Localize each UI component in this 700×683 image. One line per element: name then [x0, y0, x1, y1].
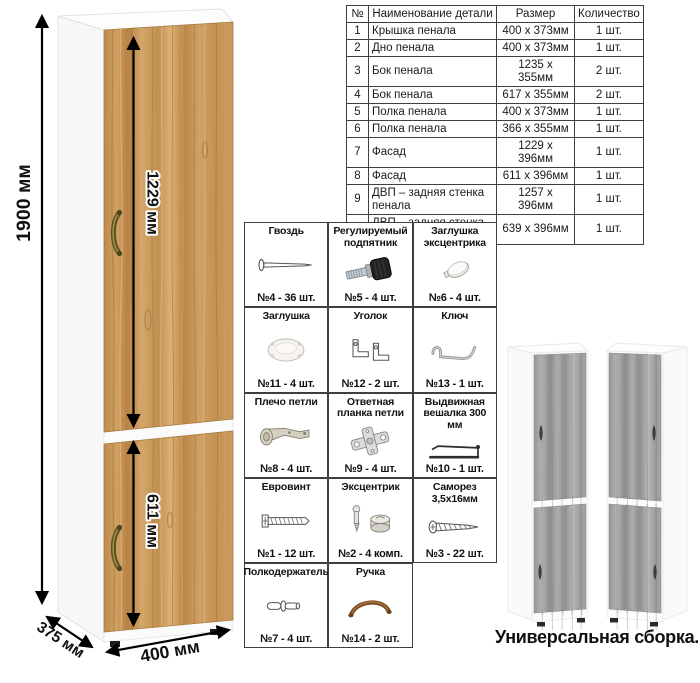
hinge-arm-icon [251, 408, 321, 463]
table-cell: 2 шт. [575, 87, 644, 104]
hardware-item-title: Эксцентрик [341, 482, 399, 494]
table-cell: 1229 х 396мм [497, 138, 575, 168]
table-cell: 1 шт. [575, 138, 644, 168]
hardware-item-title: Евровинт [262, 482, 311, 494]
hardware-item: Ответная планка петли№9 - 4 шт. [328, 393, 412, 478]
table-cell: 400 х 373мм [497, 23, 575, 40]
self-tapping-screw-icon [420, 505, 490, 548]
table-row: 4Бок пенала617 х 355мм2 шт. [347, 87, 644, 104]
upper-door-dimension-label: 1229 мм [144, 171, 161, 235]
hardware-item: Выдвижная вешалка 300 мм№10 - 1 шт. [413, 393, 497, 478]
pullout-hanger-icon [420, 432, 490, 463]
parts-table-header-row: №Наименование деталиРазмерКоличество [347, 6, 644, 23]
hardware-item-title: Саморез 3,5х16мм [415, 482, 495, 506]
table-cell: 1257 х 396мм [497, 185, 575, 215]
hardware-item-title: Ключ [441, 311, 468, 323]
universal-assembly-illustration [495, 330, 700, 630]
table-cell: 4 [347, 87, 369, 104]
table-cell: 3 [347, 57, 369, 87]
cabinet-foot [110, 641, 120, 647]
column-header: Наименование детали [369, 6, 497, 23]
hardware-item-title: Ответная планка петли [330, 397, 410, 421]
table-cell: Дно пенала [369, 40, 497, 57]
table-cell: 7 [347, 138, 369, 168]
table-cell: 1235 х 355мм [497, 57, 575, 87]
euro-screw-icon [251, 494, 321, 549]
table-cell: ДВП – задняя стенка пенала [369, 185, 497, 215]
table-row: 8Фасад611 х 396мм1 шт. [347, 168, 644, 185]
gray-cabinet-left [508, 343, 588, 630]
hex-key-icon [420, 323, 490, 378]
height-dimension-label: 1900 мм [13, 164, 35, 242]
width-dimension-label: 400 мм [139, 636, 202, 666]
table-row: 1Крышка пенала400 х 373мм1 шт. [347, 23, 644, 40]
table-row: 3Бок пенала1235 х 355мм2 шт. [347, 57, 644, 87]
corner-bracket-icon [335, 323, 405, 378]
cabinet-side-panel [58, 16, 104, 642]
hardware-item-title: Полкодержатель [244, 567, 329, 579]
shelf-pin-icon [251, 579, 321, 634]
hardware-item-count: №9 - 4 шт. [344, 463, 396, 475]
hardware-item-count: №8 - 4 шт. [260, 463, 312, 475]
eccentric-cam-icon [335, 494, 405, 549]
table-cell: 1 шт. [575, 104, 644, 121]
hardware-item: Регулируемый подпятник№5 - 4 шт. [328, 222, 412, 307]
hardware-item-count: №3 - 22 шт. [426, 548, 484, 560]
table-cell: Полка пенала [369, 121, 497, 138]
hardware-item-title: Гвоздь [268, 226, 303, 238]
table-cell: Фасад [369, 138, 497, 168]
table-cell: 1 шт. [575, 23, 644, 40]
column-header: № [347, 6, 369, 23]
hardware-item: Ручка№14 - 2 шт. [328, 563, 412, 648]
table-cell: Бок пенала [369, 57, 497, 87]
eccentric-cap-icon [420, 250, 490, 293]
table-cell: 6 [347, 121, 369, 138]
table-row: 9ДВП – задняя стенка пенала1257 х 396мм1… [347, 185, 644, 215]
table-cell: 617 х 355мм [497, 87, 575, 104]
table-cell: Фасад [369, 168, 497, 185]
hardware-item-count: №11 - 4 шт. [258, 378, 315, 390]
adjustable-foot-icon [335, 250, 405, 293]
hardware-item-count: №10 - 1 шт. [426, 463, 484, 475]
hardware-item: Уголок№12 - 2 шт. [328, 307, 412, 392]
hardware-item: Заглушка эксцентрика№6 - 4 шт. [413, 222, 497, 307]
hardware-item-count: №5 - 4 шт. [344, 292, 396, 304]
assembly-scheme: 1900 мм 1229 мм 611 мм 375 мм 400 мм №На… [0, 0, 700, 683]
gray-cabinet-right [607, 343, 687, 630]
hardware-item: Плечо петли№8 - 4 шт. [244, 393, 328, 478]
lower-door-dimension-label: 611 мм [144, 494, 161, 548]
table-cell: 2 [347, 40, 369, 57]
column-header: Количество [575, 6, 644, 23]
hardware-item-title: Регулируемый подпятник [330, 226, 410, 250]
table-cell: 1 шт. [575, 40, 644, 57]
hardware-grid: Гвоздь№4 - 36 шт.Регулируемый подпятник№… [244, 222, 497, 648]
hardware-item: Полкодержатель№7 - 4 шт. [244, 563, 328, 648]
table-cell: Крышка пенала [369, 23, 497, 40]
hardware-item-count: №6 - 4 шт. [429, 292, 481, 304]
universal-assembly-caption: Универсальная сборка. [494, 627, 700, 648]
table-row: 6Полка пенала366 х 355мм1 шт. [347, 121, 644, 138]
hardware-item-count: №1 - 12 шт. [257, 548, 315, 560]
table-cell: 1 [347, 23, 369, 40]
hardware-item: Эксцентрик№2 - 4 комп. [328, 478, 412, 563]
table-row: 5Полка пенала400 х 373мм1 шт. [347, 104, 644, 121]
table-cell: 400 х 373мм [497, 104, 575, 121]
hardware-item-count: №12 - 2 шт. [341, 378, 399, 390]
table-cell: Полка пенала [369, 104, 497, 121]
table-cell: 639 х 396мм [497, 215, 575, 245]
table-cell: 366 х 355мм [497, 121, 575, 138]
hardware-item-title: Заглушка эксцентрика [415, 226, 495, 250]
table-row: 2Дно пенала400 х 373мм1 шт. [347, 40, 644, 57]
hardware-item-count: №13 - 1 шт. [426, 378, 484, 390]
hinge-plate-icon [335, 420, 405, 463]
hardware-item-count: №14 - 2 шт. [341, 633, 399, 645]
nail-icon [251, 238, 321, 293]
hardware-item-count: №2 - 4 комп. [338, 548, 403, 560]
table-cell: 1 шт. [575, 168, 644, 185]
table-cell: 1 шт. [575, 215, 644, 245]
hardware-item: Саморез 3,5х16мм№3 - 22 шт. [413, 478, 497, 563]
hardware-item-title: Ручка [356, 567, 385, 579]
table-cell: Бок пенала [369, 87, 497, 104]
hardware-item: Евровинт№1 - 12 шт. [244, 478, 328, 563]
table-cell: 1 шт. [575, 185, 644, 215]
hardware-item: Ключ№13 - 1 шт. [413, 307, 497, 392]
table-cell: 400 х 373мм [497, 40, 575, 57]
cabinet-illustration: 1900 мм 1229 мм 611 мм 375 мм 400 мм [0, 0, 240, 683]
hardware-item-count: №4 - 36 шт. [257, 292, 315, 304]
hardware-item-count: №7 - 4 шт. [260, 633, 312, 645]
hardware-item: Заглушка№11 - 4 шт. [244, 307, 328, 392]
table-cell: 5 [347, 104, 369, 121]
table-cell: 9 [347, 185, 369, 215]
hardware-item: Гвоздь№4 - 36 шт. [244, 222, 328, 307]
round-cap-icon [251, 323, 321, 378]
table-cell: 1 шт. [575, 121, 644, 138]
parts-table: №Наименование деталиРазмерКоличество 1Кр… [346, 5, 644, 245]
hardware-item-title: Выдвижная вешалка 300 мм [415, 397, 495, 432]
hardware-item-title: Уголок [354, 311, 388, 323]
table-row: 7Фасад1229 х 396мм1 шт. [347, 138, 644, 168]
column-header: Размер [497, 6, 575, 23]
hardware-item-title: Заглушка [263, 311, 310, 323]
table-cell: 8 [347, 168, 369, 185]
table-cell: 2 шт. [575, 57, 644, 87]
hardware-item-title: Плечо петли [255, 397, 318, 409]
table-cell: 611 х 396мм [497, 168, 575, 185]
handle-icon [335, 579, 405, 634]
